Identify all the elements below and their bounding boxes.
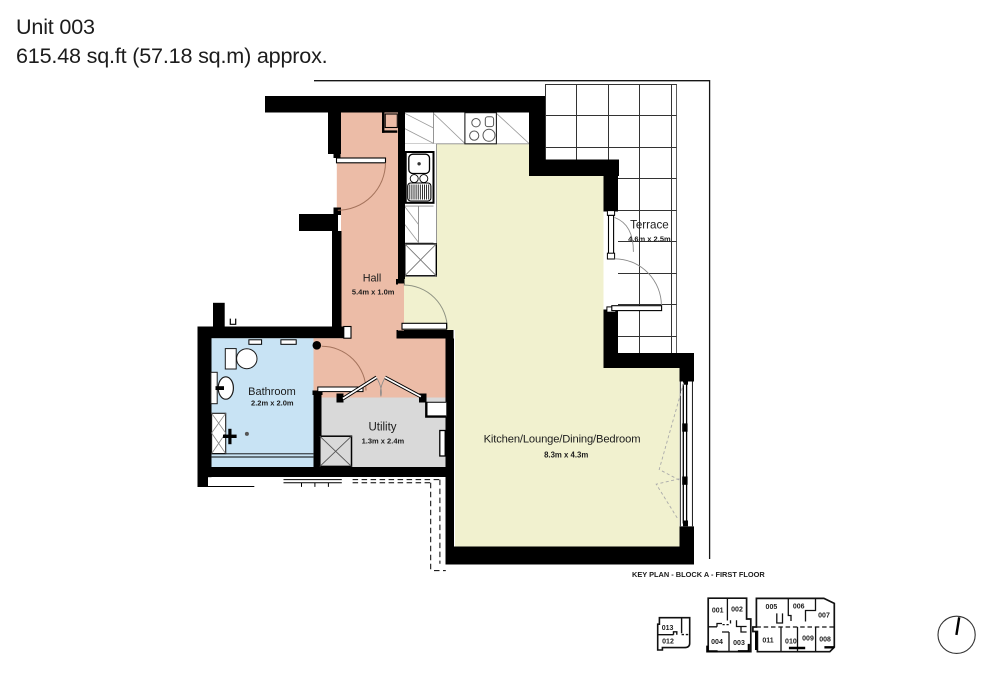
svg-text:001: 001 — [712, 608, 724, 615]
svg-text:1.3m x 2.4m: 1.3m x 2.4m — [362, 436, 405, 445]
svg-text:KEY PLAN - BLOCK A - FIRST FLO: KEY PLAN - BLOCK A - FIRST FLOOR — [632, 570, 765, 579]
svg-text:Kitchen/Lounge/Dining/Bedroom: Kitchen/Lounge/Dining/Bedroom — [484, 433, 641, 445]
svg-text:Hall: Hall — [363, 273, 382, 285]
svg-text:Unit 003: Unit 003 — [16, 14, 95, 39]
svg-text:5.4m x 1.0m: 5.4m x 1.0m — [352, 287, 395, 296]
svg-text:011: 011 — [762, 637, 773, 644]
svg-text:615.48 sq.ft (57.18 sq.m) appr: 615.48 sq.ft (57.18 sq.m) approx. — [16, 43, 328, 68]
svg-text:003: 003 — [733, 640, 745, 647]
svg-text:Terrace: Terrace — [630, 219, 669, 232]
svg-text:4.6m x 2.5m: 4.6m x 2.5m — [628, 235, 671, 244]
svg-text:004: 004 — [711, 639, 723, 646]
svg-text:008: 008 — [819, 636, 831, 643]
svg-text:009: 009 — [802, 636, 814, 643]
svg-text:2.2m x 2.0m: 2.2m x 2.0m — [251, 398, 294, 407]
svg-text:013: 013 — [662, 625, 674, 632]
svg-text:006: 006 — [793, 604, 805, 611]
svg-text:005: 005 — [766, 604, 778, 611]
svg-text:007: 007 — [818, 613, 830, 620]
svg-text:8.3m x 4.3m: 8.3m x 4.3m — [544, 451, 588, 460]
svg-text:Bathroom: Bathroom — [248, 386, 296, 398]
svg-text:012: 012 — [662, 639, 674, 646]
svg-text:002: 002 — [731, 606, 743, 613]
svg-text:010: 010 — [785, 639, 797, 646]
svg-text:Utility: Utility — [368, 421, 396, 433]
